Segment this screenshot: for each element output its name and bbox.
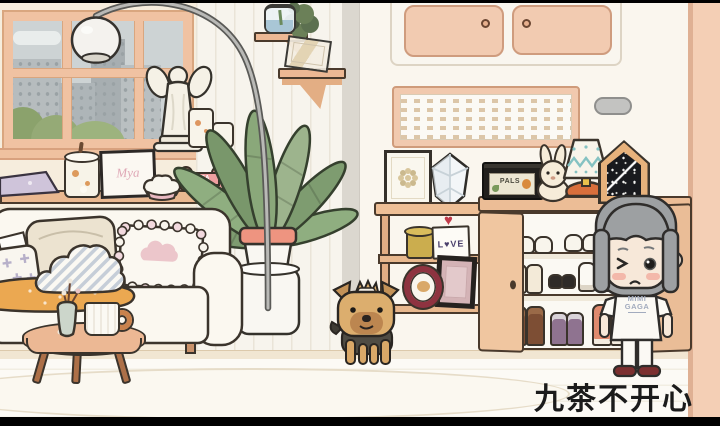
pals-box-label-bg: PALS (489, 173, 535, 195)
pals-art-leaf (492, 185, 499, 192)
letterbox-top (0, 0, 720, 3)
shoe-pair-white-slipons[interactable] (534, 236, 553, 254)
heart-icon: ♥ (444, 212, 453, 229)
black-flat[interactable] (561, 274, 576, 289)
purple-boot[interactable] (566, 312, 584, 346)
cabinet-open-door-left[interactable] (478, 211, 524, 353)
cream-boot[interactable] (526, 264, 543, 294)
caption-watermark: 九茶不开心 (534, 374, 720, 418)
pals-box-text: PALS (492, 178, 528, 185)
arm (663, 314, 672, 337)
open-eye (645, 259, 656, 270)
love-card-text: L♥VE (434, 238, 468, 249)
shoe-pair-white-slipons[interactable] (564, 234, 583, 252)
mug[interactable] (84, 302, 120, 336)
arm (600, 314, 609, 337)
letterbox-bottom (0, 417, 720, 426)
hair-side (594, 230, 609, 292)
character-shirt-text: MIMI GAGA (610, 295, 664, 313)
shirt-line2: GAGA (610, 303, 664, 311)
photo-inner (444, 265, 468, 298)
round-cat-frame[interactable] (404, 266, 442, 308)
blush (612, 273, 626, 280)
pants-leg (622, 340, 636, 368)
coffee-table-leg (71, 352, 82, 384)
brown-strap-boot[interactable] (526, 306, 545, 346)
cat-face (417, 281, 430, 292)
tier-table-top[interactable] (374, 202, 494, 216)
candle-cup-top (404, 226, 435, 237)
sofa-leg (186, 343, 195, 353)
door-knob (510, 280, 516, 289)
dog[interactable] (326, 280, 406, 372)
flower-motif (405, 175, 411, 181)
coffee-table-apron (26, 338, 142, 354)
pants-leg (638, 340, 652, 368)
blush (646, 273, 660, 280)
hair-side (663, 230, 678, 292)
flower-frame[interactable] (384, 150, 432, 206)
game-room-scene: Mya MIGA (0, 0, 720, 426)
vase-with-twigs[interactable] (48, 272, 88, 338)
shirt-underline (628, 312, 646, 313)
character[interactable] (588, 190, 692, 380)
